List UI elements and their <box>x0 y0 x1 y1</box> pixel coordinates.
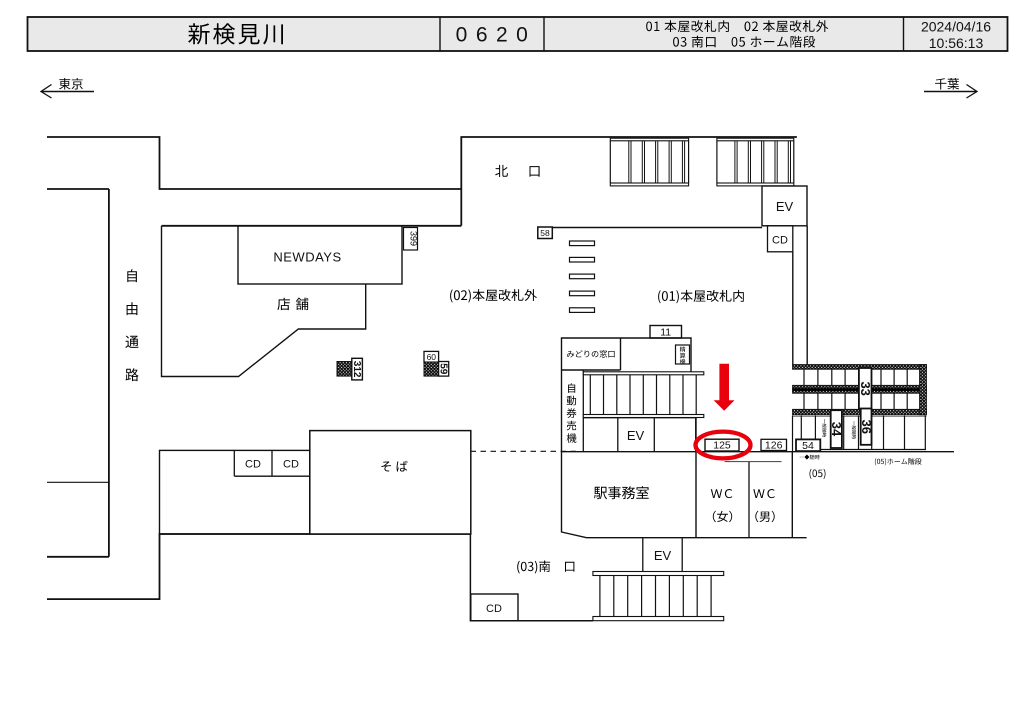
svg-text:34: 34 <box>829 422 844 437</box>
svg-text:CD: CD <box>486 603 502 615</box>
svg-text:CD: CD <box>772 235 788 247</box>
svg-text:36: 36 <box>859 419 874 433</box>
svg-text:126: 126 <box>765 439 783 451</box>
svg-text:59: 59 <box>437 363 448 375</box>
svg-text:0620: 0620 <box>456 24 537 47</box>
svg-text:EV: EV <box>776 199 794 214</box>
svg-text:312: 312 <box>351 361 362 378</box>
svg-text:60: 60 <box>427 352 437 362</box>
svg-text:125: 125 <box>713 440 731 452</box>
svg-text:CD: CD <box>283 459 299 471</box>
svg-text:NEWDAYS: NEWDAYS <box>273 250 341 265</box>
svg-text:33: 33 <box>858 381 873 395</box>
svg-text:EV: EV <box>627 428 645 443</box>
svg-text:11: 11 <box>660 327 671 339</box>
svg-text:54: 54 <box>802 440 814 452</box>
svg-text:EV: EV <box>654 548 672 563</box>
svg-text:CD: CD <box>245 459 261 471</box>
svg-text:58: 58 <box>540 228 550 238</box>
svg-text:399: 399 <box>409 231 419 246</box>
svg-text:10:56:13: 10:56:13 <box>929 35 984 51</box>
svg-text:2024/04/16: 2024/04/16 <box>921 19 991 35</box>
